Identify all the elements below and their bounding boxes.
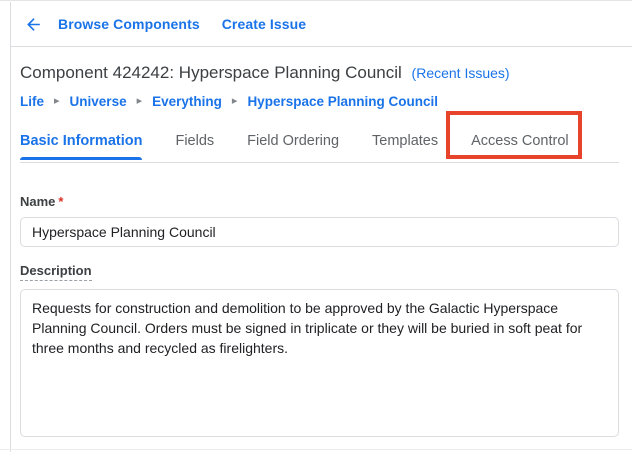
description-label: Description <box>20 263 619 281</box>
name-input[interactable] <box>20 217 619 247</box>
chevron-right-icon: ▸ <box>232 96 238 107</box>
topbar: Browse Components Create Issue <box>11 2 632 47</box>
tab-wrap-templates: Templates <box>372 122 438 160</box>
tab-templates[interactable]: Templates <box>372 122 438 160</box>
description-textarea[interactable]: Requests for construction and demolition… <box>20 289 619 437</box>
recent-issues-link[interactable]: (Recent Issues) <box>412 65 510 81</box>
page: Browse Components Create Issue Component… <box>0 0 632 452</box>
tab-field-ordering[interactable]: Field Ordering <box>247 122 339 160</box>
breadcrumb: Life ▸ Universe ▸ Everything ▸ Hyperspac… <box>20 94 619 109</box>
page-title: Component 424242: Hyperspace Planning Co… <box>20 63 402 82</box>
breadcrumb-item-life[interactable]: Life <box>20 94 44 109</box>
breadcrumb-item-universe[interactable]: Universe <box>70 94 127 109</box>
component-panel: Browse Components Create Issue Component… <box>10 2 632 452</box>
chevron-right-icon: ▸ <box>54 96 60 107</box>
arrow-back-icon <box>24 15 43 34</box>
tab-wrap-fields: Fields <box>175 122 214 160</box>
name-label-text: Name <box>20 194 55 209</box>
main-content: Component 424242: Hyperspace Planning Co… <box>11 63 632 437</box>
chevron-right-icon: ▸ <box>137 96 143 107</box>
description-label-text: Description <box>20 263 92 281</box>
tab-bar: Basic Information Fields Field Ordering … <box>20 122 619 160</box>
browse-components-link[interactable]: Browse Components <box>58 16 200 32</box>
tab-fields[interactable]: Fields <box>175 122 214 160</box>
tab-access-control[interactable]: Access Control <box>471 122 569 160</box>
tab-wrap-basic-information: Basic Information <box>20 122 142 160</box>
name-label: Name* <box>20 194 619 209</box>
tabs-divider <box>20 162 619 163</box>
page-title-row: Component 424242: Hyperspace Planning Co… <box>20 63 619 83</box>
breadcrumb-item-hyperspace-planning-council[interactable]: Hyperspace Planning Council <box>247 94 438 109</box>
tab-wrap-access-control: Access Control <box>471 122 569 160</box>
tab-basic-information[interactable]: Basic Information <box>20 122 142 160</box>
back-button[interactable] <box>20 11 46 37</box>
create-issue-link[interactable]: Create Issue <box>222 16 306 32</box>
breadcrumb-item-everything[interactable]: Everything <box>152 94 222 109</box>
tab-wrap-field-ordering: Field Ordering <box>247 122 339 160</box>
window-bottom-edge <box>0 449 632 450</box>
required-asterisk: * <box>58 194 63 209</box>
